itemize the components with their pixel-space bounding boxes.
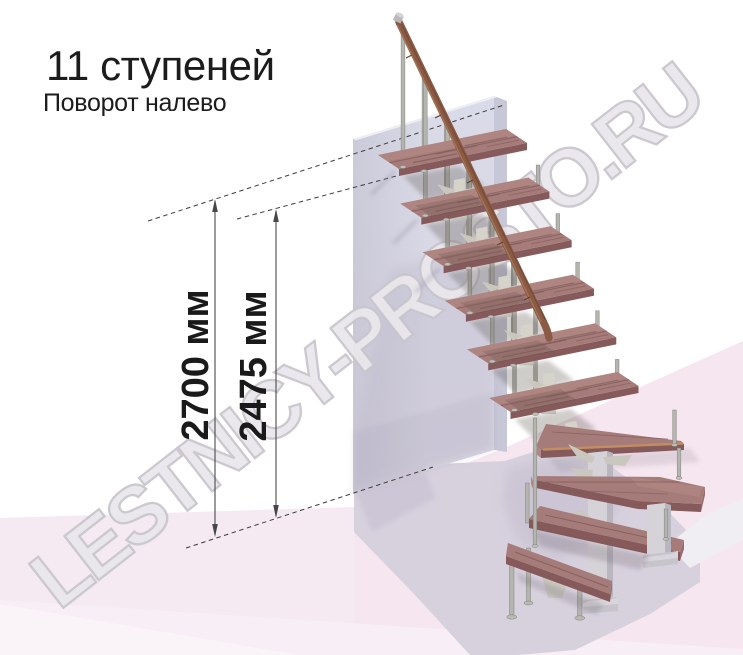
svg-text:2475 мм: 2475 мм xyxy=(233,290,275,441)
svg-text:Поворот налево: Поворот налево xyxy=(43,89,226,117)
svg-text:11 ступеней: 11 ступеней xyxy=(46,42,275,89)
svg-text:2700 мм: 2700 мм xyxy=(175,289,217,440)
